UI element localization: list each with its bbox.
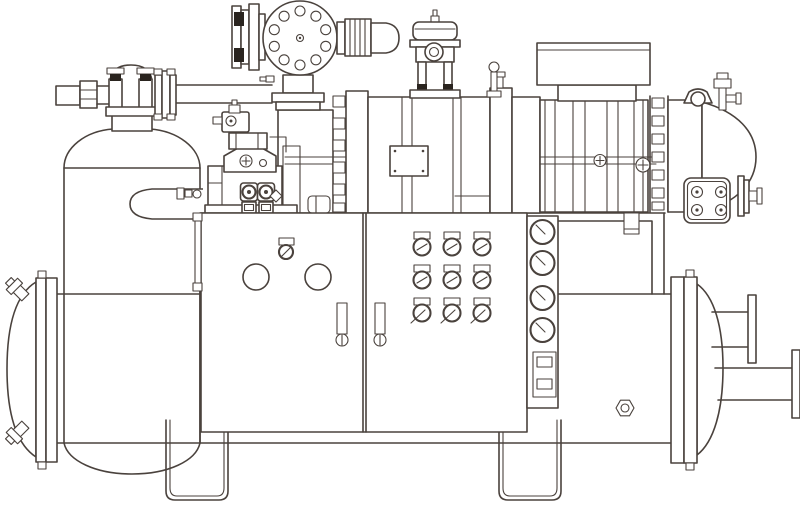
gauge-panel-strip: [527, 216, 558, 408]
vessel-left-flange-inner: [46, 278, 57, 462]
door-latch: [279, 238, 294, 259]
vessel-hex-plug: [616, 400, 634, 416]
pressure-gauge-4: [531, 318, 555, 342]
flange-band-left: [346, 91, 368, 213]
pressure-gauge-2: [531, 251, 555, 275]
shaft-end-fittings: [738, 176, 762, 216]
motor-barrel: [540, 100, 648, 212]
flange-side-coupling: [337, 19, 399, 56]
grid-gauge[interactable]: [444, 265, 461, 289]
chiller-line-drawing: Water-cooled screw chiller package — eng…: [0, 0, 800, 506]
discharge-flange-assembly: [232, 1, 399, 110]
vessel-right-flange-inner: [671, 277, 684, 463]
grid-gauge[interactable]: [414, 232, 431, 256]
tank-neck: [112, 115, 152, 131]
flange-ring-left-serration: [333, 96, 345, 212]
actuator-leg-left: [418, 62, 426, 85]
flange-ring-right-serration: [650, 96, 668, 212]
actuator-leg-right: [444, 62, 452, 85]
suction-pipe: [176, 85, 272, 103]
valve-gland-right: [140, 74, 151, 81]
pedestal-fitting: [260, 76, 274, 82]
vessel-right-flange-bolt-top: [686, 270, 694, 277]
casing-section-right: [512, 97, 540, 213]
motor-top-valve: [714, 73, 741, 110]
valve-post-left: [109, 79, 122, 109]
valve-gland-left: [110, 74, 121, 81]
housing-foot-pad: [308, 196, 330, 213]
gauge-grid: [411, 232, 491, 323]
valve-bonnet-base: [106, 107, 156, 116]
lifting-lug: [684, 89, 712, 106]
tank-bottom-head: [64, 443, 200, 474]
grid-gauge[interactable]: [414, 265, 431, 289]
tank-body: [64, 129, 200, 443]
actuator-sight-port: [425, 43, 443, 61]
pipe-hex-coupling: [80, 81, 97, 108]
actuator-plinth: [410, 90, 460, 98]
suction-shutoff-valve: [106, 65, 156, 116]
grid-gauge[interactable]: [474, 232, 491, 256]
cabinet-hinge: [193, 213, 202, 291]
pilot-valve-body: [229, 133, 267, 149]
vessel-right-nozzle-lower: [715, 350, 800, 418]
actuator-cap: [413, 22, 457, 40]
solenoid-coil-1: [241, 183, 258, 213]
motor-terminal-box: [537, 43, 650, 101]
vessel-left-flange-bolt-bottom: [38, 462, 46, 469]
compressor-nameplate: [390, 146, 428, 176]
control-cabinet: [193, 213, 527, 443]
pressure-gauge-3: [531, 286, 555, 310]
pilot-solenoid: [213, 100, 249, 132]
top-actuator: [410, 10, 501, 98]
flange-pedestal: [283, 75, 313, 93]
flange-band-mid: [490, 88, 512, 213]
motor-cover-plate: [684, 178, 730, 223]
pressure-tap-stub: [624, 213, 639, 234]
valve-flange-pack: [154, 69, 176, 120]
pipe-stub: [56, 86, 80, 105]
valve-post-right: [139, 79, 152, 109]
vessel-right-flange-bolt-bottom: [686, 463, 694, 470]
tie-rod-screw-2: [636, 158, 650, 172]
tie-rod-screw-1: [594, 155, 606, 167]
grid-gauge[interactable]: [474, 265, 491, 289]
vessel-right-head: [697, 284, 723, 455]
flange-cover-circle: [263, 1, 337, 75]
pressure-gauge-1: [531, 220, 555, 244]
vessel-left-flange-outer: [36, 278, 46, 462]
vessel-left-flange-bolt-top: [38, 271, 46, 278]
discharge-down-pipe: [558, 213, 664, 294]
pipe-short: [97, 86, 109, 104]
flange-pack-left: [232, 4, 265, 70]
chiller-diagram-svg: Water-cooled screw chiller package — eng…: [0, 0, 800, 506]
grid-gauge[interactable]: [444, 232, 461, 256]
vessel-right-flange-outer: [684, 277, 697, 463]
